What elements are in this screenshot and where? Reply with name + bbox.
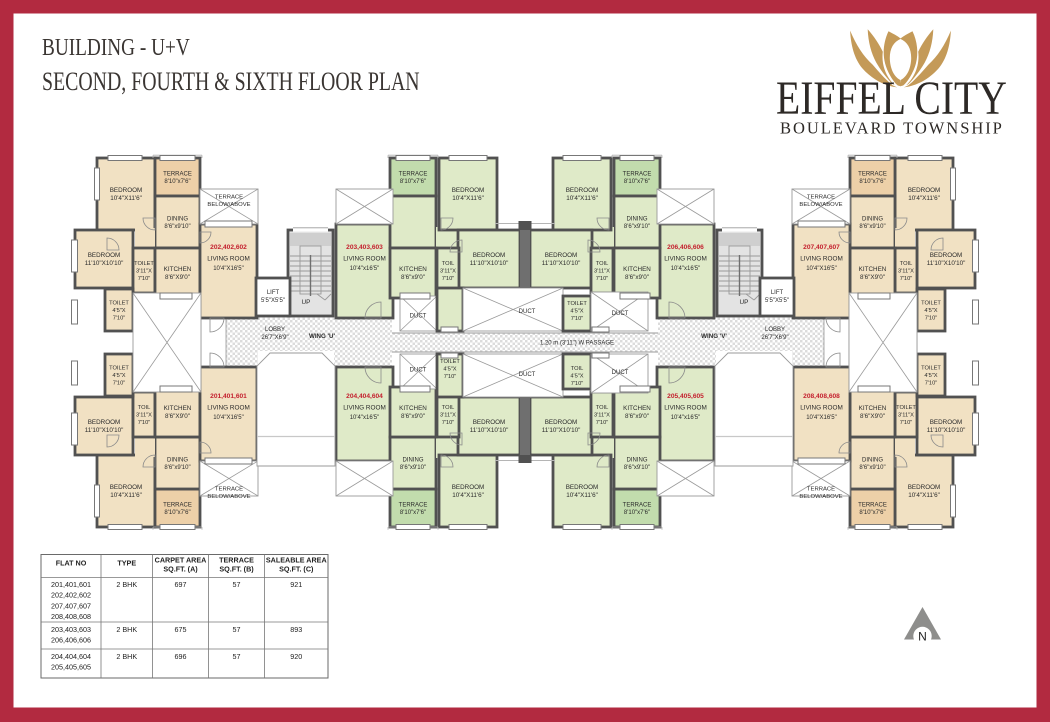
svg-text:10'4"x16'5": 10'4"x16'5": [671, 415, 701, 421]
svg-text:697: 697: [175, 580, 187, 589]
svg-text:8'10"x7'6": 8'10"x7'6": [400, 510, 426, 516]
svg-text:8'6"x9'10": 8'6"x9'10": [164, 224, 190, 230]
svg-text:BEDROOM: BEDROOM: [110, 484, 143, 491]
svg-text:KITCHEN: KITCHEN: [623, 405, 651, 412]
svg-text:LIVING ROOM: LIVING ROOM: [664, 256, 707, 263]
svg-text:10'4"X11'6": 10'4"X11'6": [110, 492, 142, 499]
svg-text:10'4"X11'6": 10'4"X11'6": [908, 492, 940, 499]
svg-text:DINING: DINING: [627, 216, 648, 222]
svg-text:LIVING ROOM: LIVING ROOM: [800, 405, 843, 412]
svg-text:7'10": 7'10": [113, 316, 126, 322]
svg-text:201,401,601: 201,401,601: [51, 580, 91, 589]
svg-text:BEDROOM: BEDROOM: [545, 252, 578, 259]
svg-text:2 BHK: 2 BHK: [116, 580, 137, 589]
svg-text:8'6"X9'0": 8'6"X9'0": [860, 413, 885, 420]
svg-text:8'6"x9'10": 8'6"x9'10": [400, 465, 426, 471]
svg-text:3'11"X: 3'11"X: [594, 269, 610, 275]
svg-text:203,403,603: 203,403,603: [51, 625, 91, 634]
svg-text:LIVING ROOM: LIVING ROOM: [664, 405, 707, 412]
svg-text:1.20 m (3'11") W PASSAGE: 1.20 m (3'11") W PASSAGE: [540, 341, 614, 347]
svg-text:TYPE: TYPE: [117, 559, 136, 568]
svg-text:207,407,607: 207,407,607: [51, 601, 91, 610]
svg-text:KITCHEN: KITCHEN: [399, 405, 427, 412]
svg-text:TOILET: TOILET: [567, 301, 587, 307]
svg-text:10'4"X11'6": 10'4"X11'6": [908, 195, 940, 202]
svg-text:10'4"X11'6": 10'4"X11'6": [452, 492, 484, 499]
svg-text:206,406,606: 206,406,606: [667, 244, 704, 251]
svg-text:TERRACE: TERRACE: [858, 171, 887, 177]
svg-text:SALEABLE AREA: SALEABLE AREA: [266, 556, 327, 565]
svg-text:3'11"X: 3'11"X: [898, 269, 914, 275]
svg-text:7'10": 7'10": [596, 276, 609, 282]
svg-text:5'5"X5'5": 5'5"X5'5": [765, 298, 789, 304]
svg-text:204,404,604: 204,404,604: [346, 393, 383, 400]
svg-text:TERRACE: TERRACE: [219, 556, 254, 565]
svg-text:BEDROOM: BEDROOM: [930, 252, 963, 259]
svg-text:4'5"X: 4'5"X: [924, 308, 937, 314]
svg-text:TERRACE: TERRACE: [623, 171, 652, 177]
svg-text:3'11"X: 3'11"X: [594, 413, 610, 419]
svg-text:3'11"X: 3'11"X: [136, 269, 152, 275]
svg-text:TOIL: TOIL: [442, 405, 455, 411]
svg-text:TOIL: TOIL: [571, 366, 584, 372]
svg-text:7'10": 7'10": [571, 316, 584, 322]
svg-text:TERRACE: TERRACE: [163, 502, 192, 508]
svg-text:DINING: DINING: [403, 457, 424, 463]
svg-text:8'6"x9'10": 8'6"x9'10": [624, 224, 650, 230]
svg-text:11'10"X10'10": 11'10"X10'10": [542, 427, 581, 434]
svg-text:205,405,605: 205,405,605: [667, 393, 704, 400]
svg-text:KITCHEN: KITCHEN: [859, 266, 887, 273]
svg-text:7'10": 7'10": [138, 420, 151, 426]
svg-text:TOILET: TOILET: [134, 261, 154, 267]
svg-text:8'10"x7'6": 8'10"x7'6": [164, 510, 190, 516]
svg-text:57: 57: [233, 652, 241, 661]
svg-text:7'10": 7'10": [444, 374, 457, 380]
svg-text:DUCT: DUCT: [410, 314, 427, 320]
svg-text:BEDROOM: BEDROOM: [452, 484, 485, 491]
svg-text:LIFT: LIFT: [267, 290, 280, 296]
svg-text:BEDROOM: BEDROOM: [110, 187, 143, 194]
svg-text:BEDROOM: BEDROOM: [88, 419, 121, 426]
svg-text:11'10"X10'10": 11'10"X10'10": [927, 427, 966, 434]
svg-text:7'10": 7'10": [442, 276, 455, 282]
svg-text:LIVING ROOM: LIVING ROOM: [207, 405, 250, 412]
svg-text:BOULEVARD TOWNSHIP: BOULEVARD TOWNSHIP: [780, 118, 1004, 137]
svg-text:3'11"X: 3'11"X: [136, 413, 152, 419]
svg-text:675: 675: [175, 625, 187, 634]
svg-text:WING 'U': WING 'U': [309, 333, 335, 340]
svg-text:3'11"X: 3'11"X: [898, 413, 914, 419]
svg-text:920: 920: [290, 652, 302, 661]
svg-text:4'5"X: 4'5"X: [112, 308, 125, 314]
svg-text:893: 893: [290, 625, 302, 634]
svg-text:26'7"X6'9": 26'7"X6'9": [261, 335, 288, 341]
svg-text:SQ.FT. (B): SQ.FT. (B): [219, 565, 254, 574]
svg-text:SECOND, FOURTH & SIXTH FLOOR P: SECOND, FOURTH & SIXTH FLOOR PLAN: [42, 68, 420, 97]
svg-text:UP: UP: [740, 299, 749, 306]
svg-text:4'5"X: 4'5"X: [924, 373, 937, 379]
svg-text:11'10"X10'10": 11'10"X10'10": [470, 260, 509, 267]
svg-text:202,402,602: 202,402,602: [210, 244, 247, 251]
svg-text:SQ.FT. (A): SQ.FT. (A): [163, 565, 198, 574]
svg-text:7'10": 7'10": [925, 381, 938, 387]
svg-text:TOILET: TOILET: [109, 366, 129, 372]
svg-text:UP: UP: [302, 299, 311, 306]
svg-text:DINING: DINING: [862, 457, 883, 463]
svg-text:TERRACE: TERRACE: [807, 195, 835, 201]
svg-text:7'10": 7'10": [925, 316, 938, 322]
svg-text:TOIL: TOIL: [596, 405, 609, 411]
svg-text:8'10"x7'6": 8'10"x7'6": [164, 179, 190, 185]
svg-text:TOIL: TOIL: [442, 261, 455, 267]
svg-text:8'6"x9'0": 8'6"x9'0": [625, 274, 649, 281]
svg-text:TOILET: TOILET: [921, 366, 941, 372]
svg-text:SQ.FT. (C): SQ.FT. (C): [279, 565, 314, 574]
svg-text:26'7"X6'9": 26'7"X6'9": [761, 335, 788, 341]
svg-text:BEDROOM: BEDROOM: [473, 252, 506, 259]
svg-text:10'4"X11'6": 10'4"X11'6": [566, 492, 598, 499]
svg-text:DUCT: DUCT: [519, 372, 536, 378]
svg-text:3'11"X: 3'11"X: [440, 413, 456, 419]
svg-text:201,401,601: 201,401,601: [210, 393, 247, 400]
svg-text:LIFT: LIFT: [771, 290, 784, 296]
svg-text:205,405,605: 205,405,605: [51, 663, 91, 672]
svg-text:11'10"X10'10": 11'10"X10'10": [927, 260, 966, 267]
svg-text:11'10"X10'10": 11'10"X10'10": [542, 260, 581, 267]
svg-text:10'4"X11'6": 10'4"X11'6": [110, 195, 142, 202]
svg-text:FLAT NO: FLAT NO: [56, 559, 87, 568]
svg-text:8'10"x7'6": 8'10"x7'6": [400, 179, 426, 185]
svg-text:LIVING ROOM: LIVING ROOM: [800, 256, 843, 263]
svg-text:TERRACE: TERRACE: [858, 502, 887, 508]
svg-text:8'10"x7'6": 8'10"x7'6": [859, 179, 885, 185]
svg-text:BELOW/ABOVE: BELOW/ABOVE: [799, 494, 842, 500]
svg-text:8'10"x7'6": 8'10"x7'6": [859, 510, 885, 516]
svg-text:8'6"X9'0": 8'6"X9'0": [165, 274, 190, 281]
svg-text:8'6"x9'0": 8'6"x9'0": [625, 413, 649, 420]
svg-text:LIVING ROOM: LIVING ROOM: [343, 405, 386, 412]
svg-text:10'4"x16'5": 10'4"x16'5": [671, 266, 701, 272]
svg-text:TOILET: TOILET: [109, 301, 129, 307]
svg-text:8'6"x9'10": 8'6"x9'10": [859, 224, 885, 230]
svg-text:10'4"X16'5": 10'4"X16'5": [213, 415, 244, 421]
svg-text:KITCHEN: KITCHEN: [859, 405, 887, 412]
svg-text:8'6"x9'10": 8'6"x9'10": [164, 465, 190, 471]
svg-text:7'10": 7'10": [442, 420, 455, 426]
svg-text:BUILDING - U+V: BUILDING - U+V: [42, 34, 190, 60]
svg-text:4'5"X: 4'5"X: [443, 367, 456, 373]
svg-text:4'5"X: 4'5"X: [570, 374, 583, 380]
svg-text:2 BHK: 2 BHK: [116, 625, 137, 634]
svg-text:BEDROOM: BEDROOM: [566, 484, 599, 491]
svg-text:208,408,608: 208,408,608: [803, 393, 840, 400]
svg-text:204,404,604: 204,404,604: [51, 652, 91, 661]
svg-text:TOILET: TOILET: [440, 359, 460, 365]
svg-text:8'10"x7'6": 8'10"x7'6": [624, 179, 650, 185]
svg-text:BEDROOM: BEDROOM: [566, 187, 599, 194]
svg-text:TERRACE: TERRACE: [215, 487, 243, 493]
svg-text:10'4"X16'5": 10'4"X16'5": [806, 266, 837, 272]
svg-text:TERRACE: TERRACE: [807, 487, 835, 493]
svg-text:TERRACE: TERRACE: [623, 502, 652, 508]
svg-text:BEDROOM: BEDROOM: [545, 419, 578, 426]
svg-text:8'6"x9'0": 8'6"x9'0": [401, 274, 425, 281]
svg-text:202,402,602: 202,402,602: [51, 591, 91, 600]
svg-text:7'10": 7'10": [900, 276, 913, 282]
svg-text:DINING: DINING: [862, 216, 883, 222]
svg-text:10'4"x16'5": 10'4"x16'5": [350, 415, 380, 421]
svg-text:LIVING ROOM: LIVING ROOM: [207, 256, 250, 263]
svg-text:11'10"X10'10": 11'10"X10'10": [85, 427, 124, 434]
svg-text:BEDROOM: BEDROOM: [88, 252, 121, 259]
svg-text:BELOW/ABOVE: BELOW/ABOVE: [207, 202, 250, 208]
svg-text:8'6"x9'0": 8'6"x9'0": [401, 413, 425, 420]
svg-text:57: 57: [233, 625, 241, 634]
svg-text:206,406,606: 206,406,606: [51, 636, 91, 645]
svg-text:DUCT: DUCT: [612, 370, 629, 376]
svg-text:11'10"X10'10": 11'10"X10'10": [85, 260, 124, 267]
svg-text:CARPET AREA: CARPET AREA: [155, 556, 207, 565]
svg-text:KITCHEN: KITCHEN: [623, 266, 651, 273]
svg-text:TERRACE: TERRACE: [215, 195, 243, 201]
svg-text:BELOW/ABOVE: BELOW/ABOVE: [799, 202, 842, 208]
svg-text:N: N: [918, 630, 927, 644]
svg-text:LOBBY: LOBBY: [765, 327, 785, 333]
svg-text:TERRACE: TERRACE: [399, 171, 428, 177]
svg-text:8'6"x9'10": 8'6"x9'10": [859, 465, 885, 471]
svg-text:7'10": 7'10": [900, 420, 913, 426]
svg-text:TERRACE: TERRACE: [163, 171, 192, 177]
svg-text:4'5"X: 4'5"X: [570, 309, 583, 315]
svg-text:10'4"x16'5": 10'4"x16'5": [350, 266, 380, 272]
svg-text:EIFFEL CITY: EIFFEL CITY: [776, 71, 1007, 124]
svg-text:DINING: DINING: [167, 457, 188, 463]
svg-text:TOILET: TOILET: [896, 405, 916, 411]
svg-text:BELOW/ABOVE: BELOW/ABOVE: [207, 494, 250, 500]
svg-text:203,403,603: 203,403,603: [346, 244, 383, 251]
svg-text:DUCT: DUCT: [519, 309, 536, 315]
svg-text:BEDROOM: BEDROOM: [908, 484, 941, 491]
svg-text:3'11"X: 3'11"X: [440, 269, 456, 275]
svg-text:10'4"X11'6": 10'4"X11'6": [566, 195, 598, 202]
svg-text:4'5"X: 4'5"X: [112, 373, 125, 379]
svg-text:8'6"X9'0": 8'6"X9'0": [860, 274, 885, 281]
svg-text:208,408,608: 208,408,608: [51, 612, 91, 621]
svg-text:KITCHEN: KITCHEN: [399, 266, 427, 273]
svg-text:TOILET: TOILET: [921, 301, 941, 307]
svg-text:BEDROOM: BEDROOM: [930, 419, 963, 426]
svg-text:10'4"X16'5": 10'4"X16'5": [806, 415, 837, 421]
svg-text:BEDROOM: BEDROOM: [908, 187, 941, 194]
svg-text:DUCT: DUCT: [410, 368, 427, 374]
svg-text:10'4"X16'5": 10'4"X16'5": [213, 266, 244, 272]
svg-text:10'4"X11'6": 10'4"X11'6": [452, 195, 484, 202]
svg-text:BEDROOM: BEDROOM: [473, 419, 506, 426]
svg-text:8'6"x9'10": 8'6"x9'10": [624, 465, 650, 471]
svg-text:8'10"x7'6": 8'10"x7'6": [624, 510, 650, 516]
svg-text:7'10": 7'10": [113, 381, 126, 387]
svg-text:KITCHEN: KITCHEN: [164, 405, 192, 412]
svg-text:DUCT: DUCT: [612, 311, 629, 317]
svg-text:7'10": 7'10": [596, 420, 609, 426]
svg-text:57: 57: [233, 580, 241, 589]
svg-text:TOIL: TOIL: [138, 405, 151, 411]
svg-text:TOIL: TOIL: [900, 261, 913, 267]
svg-text:696: 696: [175, 652, 187, 661]
svg-text:11'10"X10'10": 11'10"X10'10": [470, 427, 509, 434]
svg-text:2 BHK: 2 BHK: [116, 652, 137, 661]
svg-text:DINING: DINING: [167, 216, 188, 222]
svg-text:LIVING ROOM: LIVING ROOM: [343, 256, 386, 263]
svg-text:DINING: DINING: [627, 457, 648, 463]
svg-text:LOBBY: LOBBY: [265, 327, 285, 333]
svg-text:KITCHEN: KITCHEN: [164, 266, 192, 273]
svg-text:TERRACE: TERRACE: [399, 502, 428, 508]
svg-text:BEDROOM: BEDROOM: [452, 187, 485, 194]
svg-text:5'5"X5'5": 5'5"X5'5": [261, 298, 285, 304]
svg-text:921: 921: [290, 580, 302, 589]
svg-text:7'10": 7'10": [571, 381, 584, 387]
svg-text:8'6"X9'0": 8'6"X9'0": [165, 413, 190, 420]
svg-text:TOIL: TOIL: [596, 261, 609, 267]
svg-text:WING 'V': WING 'V': [701, 333, 727, 340]
svg-text:207,407,607: 207,407,607: [803, 244, 840, 251]
svg-text:7'10": 7'10": [138, 276, 151, 282]
